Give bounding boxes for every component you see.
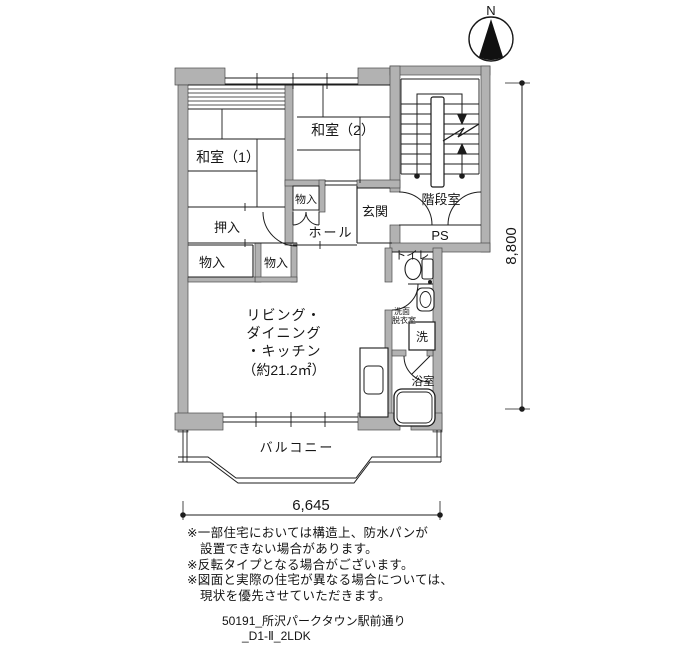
stair-break-mark xyxy=(443,124,479,141)
room-label-laundry: 洗 xyxy=(416,330,428,344)
room-label-balcony: バルコニー xyxy=(260,440,335,455)
room-label-hall: ホール xyxy=(308,225,353,240)
room-label-ps: PS xyxy=(431,228,449,243)
room-label-closet-hall: 物入 xyxy=(295,192,317,206)
door-arc-closet-double xyxy=(293,212,319,225)
room-label-stairwell: 階段室 xyxy=(421,192,460,207)
room-label-washitsu1: 和室（1） xyxy=(196,149,260,165)
room-label-closet-right: 物入 xyxy=(264,256,288,270)
room-label-washitsu2: 和室（2） xyxy=(311,122,375,138)
room-label-washroom-2: 脱衣室 xyxy=(392,315,416,325)
note-line: 設置できない場合があります。 xyxy=(187,542,453,558)
room-label-washroom-1: 洗面 xyxy=(394,306,410,316)
stair-rail xyxy=(431,97,444,187)
room-label-genkan: 玄関 xyxy=(362,204,388,219)
compass-north-label: N xyxy=(486,3,495,18)
dimension-height-value: 8,800 xyxy=(503,227,520,265)
disclaimer-notes: ※一部住宅においては構造上、防水パンが 設置できない場合があります。 ※反転タイ… xyxy=(187,526,453,605)
plan-id-line1: 50191_所沢パークタウン駅前通り xyxy=(222,614,406,629)
note-line: ※反転タイプとなる場合がございます。 xyxy=(187,558,453,574)
kitchen-counter xyxy=(360,348,388,417)
balcony-railing xyxy=(178,430,441,483)
plan-id-footer: 50191_所沢パークタウン駅前通り _D1-Ⅱ_2LDK xyxy=(222,614,406,644)
toilet-icon xyxy=(405,259,433,285)
plan-id-line2: _D1-Ⅱ_2LDK xyxy=(222,629,406,644)
floor-plan-page: N xyxy=(0,0,700,650)
compass-icon: N xyxy=(469,3,513,61)
sink-icon xyxy=(417,288,434,311)
room-label-ldk-2: ダイニング xyxy=(247,325,322,341)
room-label-ldk-3: ・キッチン xyxy=(247,343,322,359)
note-line: ※図面と実際の住宅が異なる場合については、 xyxy=(187,573,453,589)
room-label-toilet: トイレ xyxy=(395,250,430,262)
dimension-width-value: 6,645 xyxy=(292,497,330,514)
room-label-closet-left: 物入 xyxy=(199,255,225,270)
room-label-ldk-4: （約21.2㎡） xyxy=(242,362,325,378)
note-line: 現状を優先させていただきます。 xyxy=(187,589,453,605)
note-line: ※一部住宅においては構造上、防水パンが xyxy=(187,526,453,542)
room-label-bath: 浴室 xyxy=(412,374,435,388)
room-label-oshiire: 押入 xyxy=(214,220,240,235)
bathtub-icon xyxy=(394,389,435,426)
room-label-ldk-1: リビング・ xyxy=(247,307,322,323)
